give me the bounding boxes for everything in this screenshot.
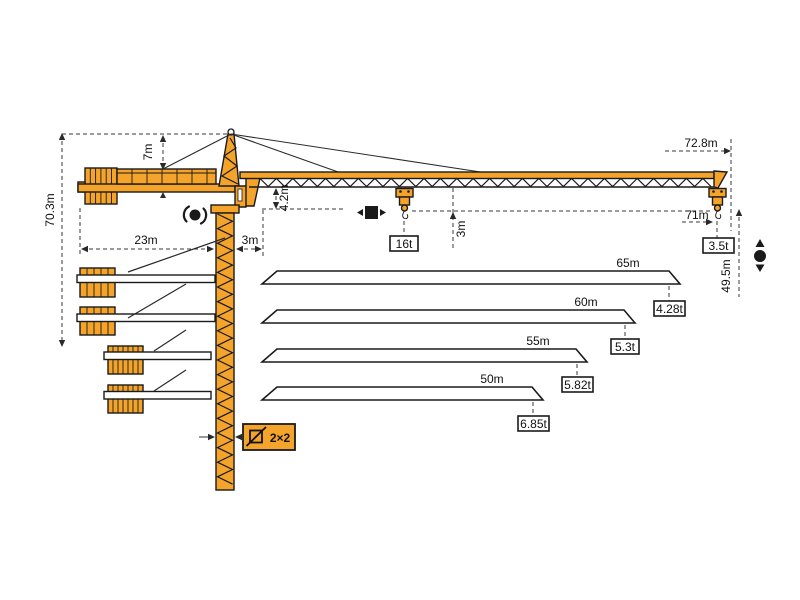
cab-window bbox=[238, 189, 242, 201]
leader-line bbox=[154, 370, 186, 391]
tip-load-label: 4.28t bbox=[656, 302, 683, 316]
ballast-bar bbox=[77, 275, 215, 283]
hoist-icon bbox=[754, 239, 766, 272]
hook-pulley bbox=[715, 205, 721, 211]
mast-section-label: 2×2 bbox=[270, 431, 291, 445]
trolley-main bbox=[396, 189, 413, 219]
tip-load-callout: 3.5t bbox=[703, 238, 734, 253]
tip-load-label: 6.85t bbox=[520, 417, 547, 431]
jib-tip bbox=[714, 171, 727, 188]
leader-line bbox=[128, 284, 186, 318]
leader-line bbox=[154, 330, 186, 351]
counterweight-option-3 bbox=[104, 330, 211, 374]
ballast-bar bbox=[104, 352, 211, 360]
tip-load-label: 3.5t bbox=[708, 239, 729, 253]
trolley-wheel bbox=[399, 190, 402, 193]
jib-bar bbox=[262, 349, 587, 362]
ballast-bar bbox=[77, 314, 215, 322]
arrow-right bbox=[207, 246, 214, 252]
hoist-arrow-down bbox=[756, 265, 765, 273]
trolley-frame bbox=[709, 189, 726, 198]
trolley-travel-icon bbox=[357, 206, 386, 219]
trolley-wheel bbox=[712, 190, 715, 193]
arrow-left bbox=[81, 246, 88, 252]
counterjib-beam bbox=[78, 184, 235, 192]
arrow-down bbox=[59, 340, 65, 347]
arrow-up bbox=[450, 212, 456, 219]
jib-tie-inner bbox=[231, 134, 341, 173]
jib-option-65m: 65m 4.28t bbox=[262, 256, 685, 316]
jib-bar bbox=[262, 271, 680, 284]
jib-length-label: 55m bbox=[526, 334, 549, 348]
arrow-up bbox=[736, 209, 742, 216]
ballast-bar bbox=[104, 392, 211, 400]
mast-offset-label: 3m bbox=[242, 233, 259, 247]
tip-load-label: 5.3t bbox=[615, 340, 636, 354]
arrow-right bbox=[724, 148, 731, 154]
arrow-left bbox=[235, 434, 242, 440]
counterweight-option-4 bbox=[104, 370, 211, 413]
jib-option-50m: 50m 6.85t bbox=[262, 372, 549, 431]
trolley-frame bbox=[396, 189, 413, 198]
jib-foot bbox=[246, 178, 260, 206]
jib-tie-outer bbox=[231, 134, 487, 173]
tip-radius-label: 71m bbox=[685, 208, 708, 222]
tie-bars bbox=[163, 134, 487, 173]
arrow-up bbox=[160, 135, 166, 142]
jib-bar bbox=[262, 387, 543, 400]
jib-bar bbox=[262, 310, 635, 323]
hook-block bbox=[713, 197, 723, 205]
counterjib-tie bbox=[163, 134, 231, 169]
slewing-platform bbox=[211, 205, 239, 213]
diagram-canvas: 65m 4.28t 60m 5.3t 55m 5.82t 50m 6.85t 2… bbox=[0, 0, 800, 600]
max-radius-label: 72.8m bbox=[684, 136, 717, 150]
jib-length-label: 60m bbox=[574, 295, 597, 309]
hook-height-label: 49.5m bbox=[719, 259, 733, 292]
hook-block bbox=[400, 197, 410, 205]
hook-drop-label: 3m bbox=[454, 221, 468, 238]
jib-option-60m: 60m 5.3t bbox=[262, 295, 639, 354]
trolley-wheel bbox=[407, 190, 410, 193]
travel-arrow-left bbox=[357, 209, 363, 216]
counter-jib bbox=[78, 168, 235, 204]
slewing-dot bbox=[190, 210, 201, 221]
travel-square bbox=[365, 206, 378, 219]
jib-top-chord bbox=[240, 172, 714, 179]
hook-icon bbox=[716, 211, 721, 219]
hoist-arrow-up bbox=[756, 239, 765, 247]
jib-option-55m: 55m 5.82t bbox=[262, 334, 593, 392]
trolley-wheel bbox=[720, 190, 723, 193]
jib-foot-drop-label: 4.2m bbox=[277, 185, 291, 212]
tip-load-label: 5.82t bbox=[564, 378, 591, 392]
max-load-label: 16t bbox=[396, 237, 413, 251]
slewing-icon bbox=[184, 207, 206, 224]
arrow-right bbox=[208, 434, 215, 440]
slewing-arc-left bbox=[184, 207, 189, 222]
main-jib bbox=[240, 171, 727, 206]
max-load-callout: 16t bbox=[390, 236, 418, 251]
jib-length-label: 50m bbox=[480, 372, 503, 386]
hoist-dot bbox=[754, 250, 766, 262]
arrow-up-small bbox=[160, 192, 166, 198]
slewing-arc-right bbox=[201, 209, 206, 224]
trolley-tip bbox=[709, 189, 726, 219]
mast-section-callout: 2×2 bbox=[199, 424, 295, 450]
total-height-label: 70.3m bbox=[43, 193, 57, 226]
travel-arrow-right bbox=[380, 209, 386, 216]
hook-pulley bbox=[402, 205, 408, 211]
jib-lattice bbox=[260, 179, 711, 187]
counterjib-radius-label: 23m bbox=[134, 233, 157, 247]
head-height-label: 7m bbox=[141, 144, 155, 161]
jib-length-label: 65m bbox=[616, 256, 639, 270]
crane-load-diagram: 65m 4.28t 60m 5.3t 55m 5.82t 50m 6.85t 2… bbox=[0, 0, 800, 600]
hook-icon bbox=[403, 211, 408, 219]
